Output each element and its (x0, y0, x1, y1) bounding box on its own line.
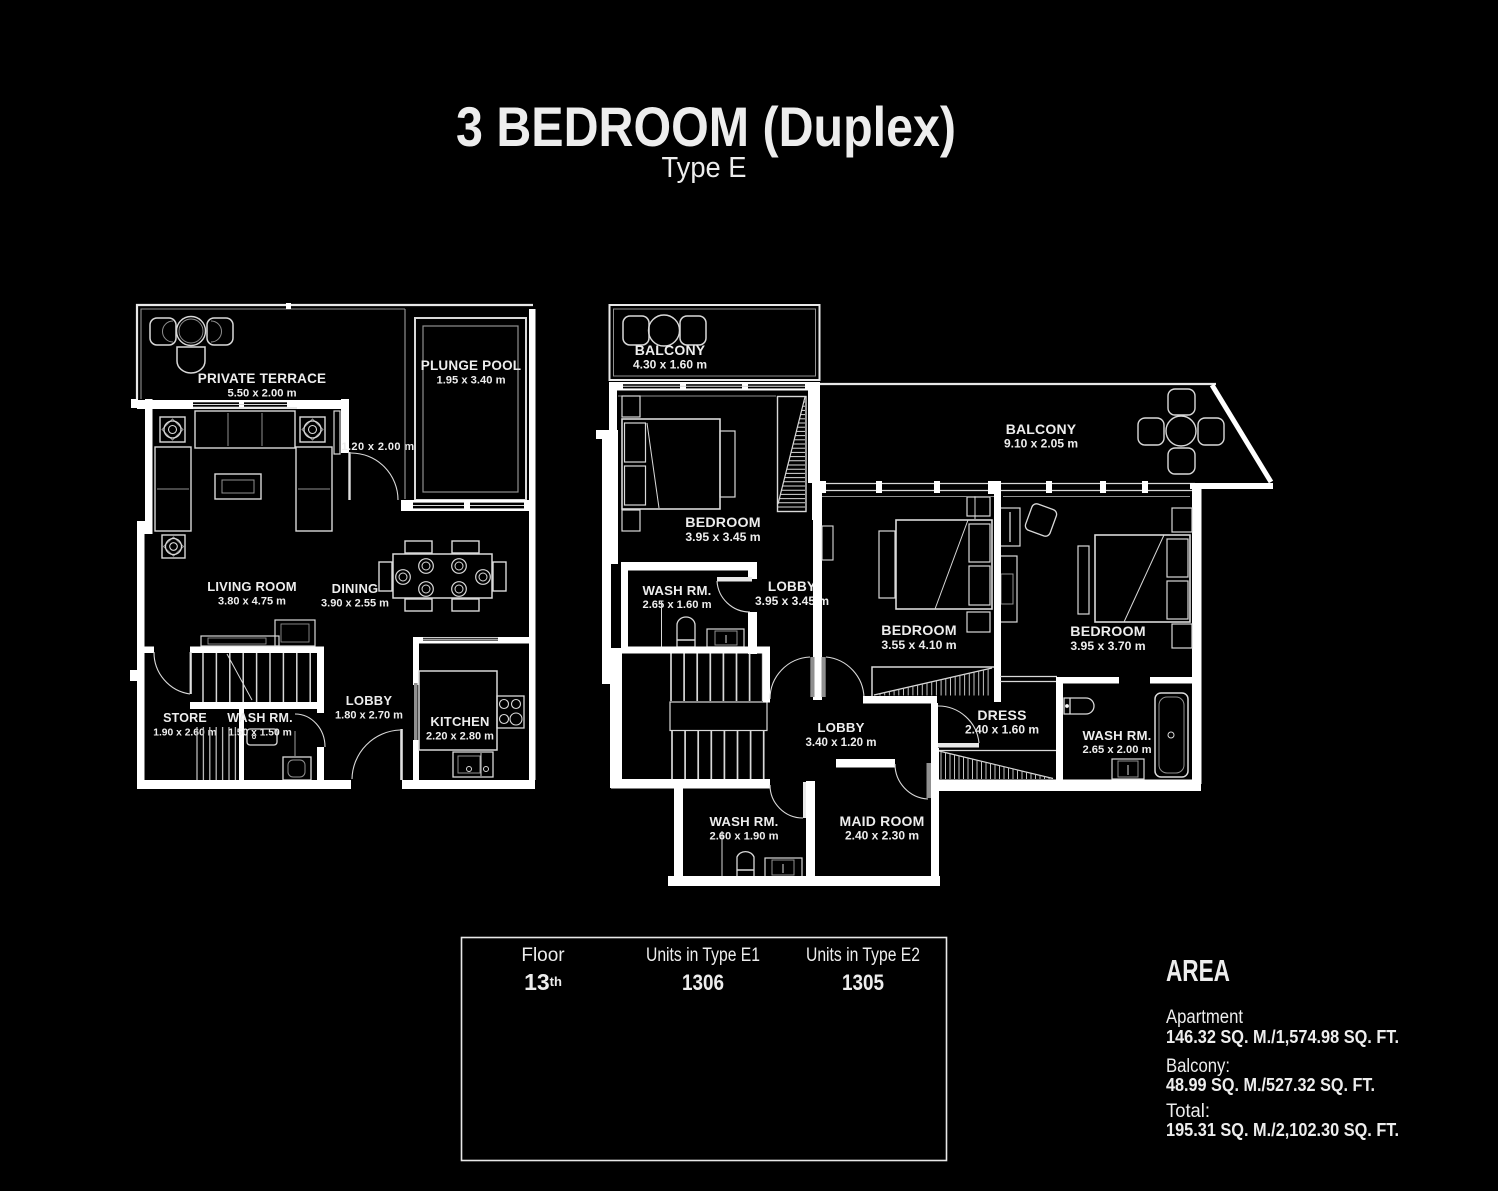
svg-text:3.95 x 3.70 m: 3.95 x 3.70 m (1070, 639, 1145, 653)
svg-text:WASH RM.: WASH RM. (710, 814, 779, 829)
svg-text:PRIVATE TERRACE: PRIVATE TERRACE (198, 371, 327, 386)
svg-text:2.40 x 2.30 m: 2.40 x 2.30 m (845, 829, 919, 843)
svg-text:BEDROOM: BEDROOM (685, 515, 761, 531)
svg-text:195.31 SQ. M./2,102.30 SQ. FT.: 195.31 SQ. M./2,102.30 SQ. FT. (1166, 1119, 1399, 1140)
svg-text:BALCONY: BALCONY (1006, 421, 1077, 437)
svg-text:KITCHEN: KITCHEN (430, 714, 489, 729)
svg-text:2.60 x 1.90 m: 2.60 x 1.90 m (709, 831, 778, 843)
svg-text:Floor: Floor (521, 945, 565, 966)
svg-text:146.32 SQ. M./1,574.98 SQ. FT.: 146.32 SQ. M./1,574.98 SQ. FT. (1166, 1026, 1399, 1047)
svg-text:4.30 x 1.60 m: 4.30 x 1.60 m (633, 358, 707, 372)
svg-text:3.80 x 4.75 m: 3.80 x 4.75 m (218, 596, 286, 608)
svg-text:DINING: DINING (332, 581, 379, 596)
svg-text:STORE: STORE (163, 711, 207, 725)
svg-text:5.50 x 2.00 m: 5.50 x 2.00 m (227, 388, 296, 400)
svg-text:Units in Type E2: Units in Type E2 (806, 945, 920, 966)
svg-text:2.65 x 1.60 m: 2.65 x 1.60 m (642, 599, 711, 611)
svg-text:Units in Type E1: Units in Type E1 (646, 945, 760, 966)
svg-text:MAID ROOM: MAID ROOM (839, 813, 924, 829)
svg-text:Apartment: Apartment (1166, 1007, 1244, 1028)
svg-text:1.20 x 2.00 m: 1.20 x 2.00 m (341, 441, 414, 453)
svg-text:3 BEDROOM (Duplex): 3 BEDROOM (Duplex) (456, 95, 956, 158)
svg-text:1306: 1306 (682, 970, 724, 995)
svg-text:WASH RM.: WASH RM. (227, 711, 293, 725)
svg-text:1.80 x 2.70 m: 1.80 x 2.70 m (335, 710, 403, 722)
svg-text:3.90 x 2.55 m: 3.90 x 2.55 m (321, 598, 389, 610)
svg-text:BALCONY: BALCONY (635, 342, 706, 358)
svg-text:PLUNGE POOL: PLUNGE POOL (421, 358, 521, 373)
svg-text:WASH RM.: WASH RM. (1083, 728, 1152, 743)
svg-text:BEDROOM: BEDROOM (881, 623, 957, 639)
svg-text:3.55 x 4.10 m: 3.55 x 4.10 m (881, 638, 956, 652)
svg-text:1305: 1305 (842, 970, 884, 995)
svg-text:1.95 x 3.40 m: 1.95 x 3.40 m (436, 375, 505, 387)
svg-text:AREA: AREA (1166, 953, 1230, 988)
svg-text:1.90 x 2.60 m: 1.90 x 2.60 m (153, 728, 217, 739)
svg-text:2.40 x 1.60 m: 2.40 x 1.60 m (965, 723, 1039, 737)
svg-text:2.65 x 2.00 m: 2.65 x 2.00 m (1082, 744, 1151, 756)
svg-text:3.95 x 3.45 m: 3.95 x 3.45 m (685, 530, 760, 544)
svg-text:LOBBY: LOBBY (817, 720, 864, 735)
svg-text:LOBBY: LOBBY (346, 693, 393, 708)
svg-text:3.40 x 1.20 m: 3.40 x 1.20 m (806, 737, 877, 749)
svg-text:48.99 SQ. M./527.32 SQ. FT.: 48.99 SQ. M./527.32 SQ. FT. (1166, 1074, 1375, 1095)
svg-text:BEDROOM: BEDROOM (1070, 624, 1146, 640)
svg-text:DRESS: DRESS (977, 707, 1026, 723)
svg-text:WASH RM.: WASH RM. (643, 583, 712, 598)
svg-text:2.20 x 2.80 m: 2.20 x 2.80 m (426, 731, 494, 743)
svg-text:LOBBY: LOBBY (768, 579, 816, 594)
svg-text:9.10 x 2.05 m: 9.10 x 2.05 m (1004, 437, 1078, 451)
svg-text:LIVING ROOM: LIVING ROOM (207, 579, 297, 594)
svg-text:Type E: Type E (662, 152, 747, 184)
